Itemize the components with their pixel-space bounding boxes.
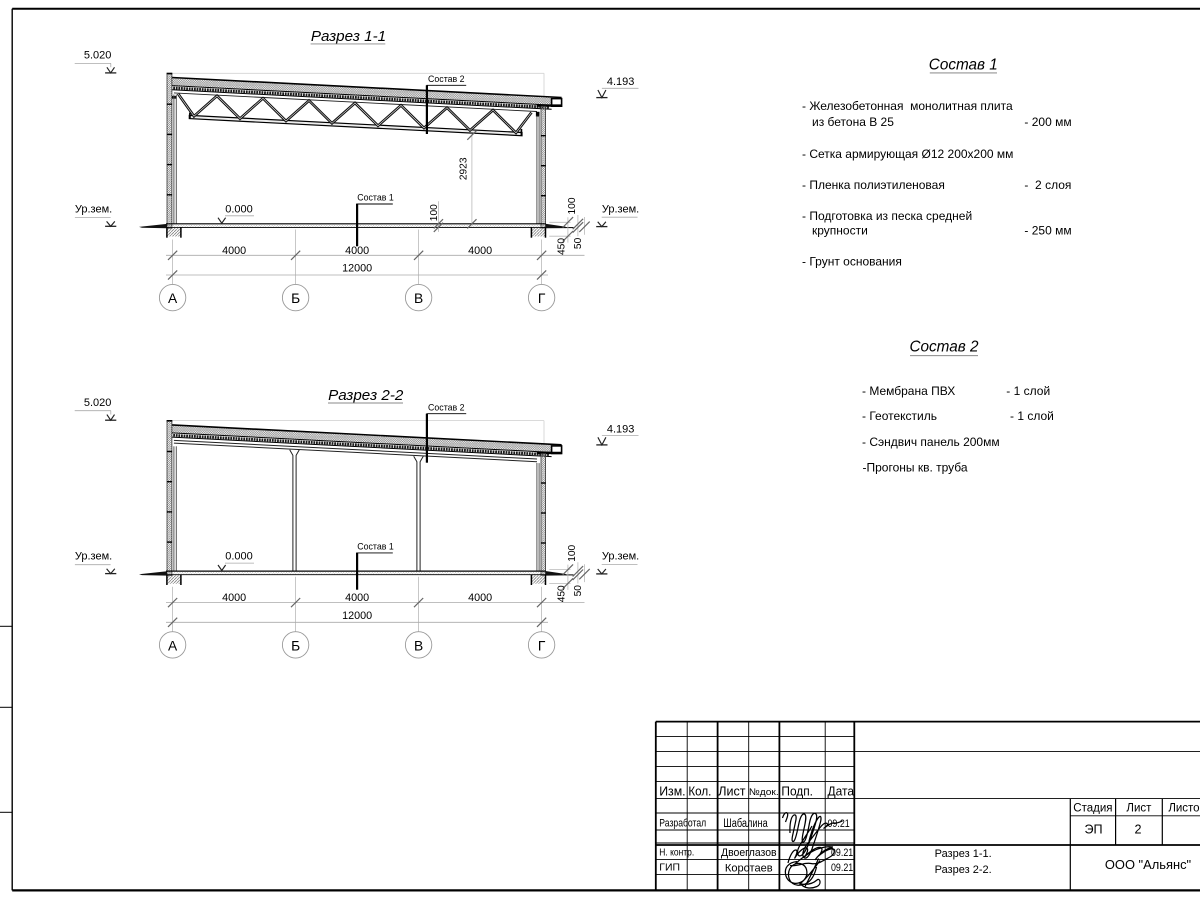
- svg-text:0.000: 0.000: [225, 203, 253, 215]
- svg-text:100: 100: [567, 197, 578, 214]
- svg-text:12000: 12000: [342, 263, 372, 275]
- svg-text:12000: 12000: [342, 610, 372, 622]
- svg-text:4000: 4000: [222, 592, 246, 604]
- svg-text:- Сетка армирующая Ø12 200х200: - Сетка армирующая Ø12 200х200 мм: [802, 147, 1013, 161]
- svg-text:- Железобетонная монолитная п: - Железобетонная монолитная плита: [802, 99, 1013, 113]
- svg-text:4000: 4000: [468, 592, 492, 604]
- svg-text:№док.: №док.: [749, 787, 779, 798]
- svg-text:- Грунт основания: - Грунт основания: [802, 254, 902, 268]
- svg-text:Разрез 1-1: Разрез 1-1: [311, 28, 386, 45]
- svg-text:Состав 1: Состав 1: [357, 193, 394, 203]
- svg-text:4.193: 4.193: [607, 76, 635, 88]
- svg-text:- Геотекстиль: - Геотекстиль: [862, 409, 937, 423]
- svg-text:Лист: Лист: [718, 783, 745, 798]
- svg-text:ООО "Альянс": ООО "Альянс": [1105, 857, 1192, 872]
- svg-text:- Сэндвич панель 200мм: - Сэндвич панель 200мм: [862, 435, 1000, 449]
- svg-text:100: 100: [567, 544, 578, 561]
- svg-text:Н. контр.: Н. контр.: [659, 847, 694, 859]
- svg-text:Б: Б: [291, 291, 300, 306]
- svg-text:- Пленка полиэтиленовая: - Пленка полиэтиленовая: [802, 178, 945, 192]
- svg-text:Состав 2: Состав 2: [428, 74, 465, 84]
- svg-text:Разрез 2-2: Разрез 2-2: [328, 387, 404, 404]
- svg-text:- 2 слоя: - 2 слоя: [1024, 178, 1071, 192]
- svg-text:А: А: [168, 291, 178, 306]
- svg-text:А: А: [168, 638, 178, 653]
- svg-text:- Подготовка из песка средней: - Подготовка из песка средней: [802, 209, 972, 223]
- svg-text:5.020: 5.020: [84, 397, 112, 409]
- svg-text:50: 50: [573, 585, 584, 597]
- svg-text:5.020: 5.020: [84, 50, 112, 62]
- svg-text:- 250 мм: - 250 мм: [1024, 223, 1071, 237]
- svg-text:Лист: Лист: [1126, 803, 1152, 815]
- svg-text:ГИП: ГИП: [659, 862, 680, 873]
- svg-text:Изм.: Изм.: [659, 783, 685, 798]
- svg-text:100: 100: [429, 204, 440, 221]
- svg-text:450: 450: [556, 238, 567, 255]
- svg-text:Б: Б: [291, 638, 300, 653]
- svg-text:Разрез 1-1.: Разрез 1-1.: [935, 848, 992, 860]
- svg-text:4000: 4000: [345, 245, 369, 257]
- svg-text:Состав 2: Состав 2: [428, 402, 465, 412]
- svg-text:4.193: 4.193: [607, 424, 635, 436]
- svg-text:09.21: 09.21: [831, 862, 853, 874]
- svg-text:Подп.: Подп.: [781, 783, 813, 798]
- svg-text:2: 2: [1134, 823, 1141, 837]
- svg-text:50: 50: [573, 237, 584, 249]
- svg-text:Двоеглазов: Двоеглазов: [721, 847, 777, 859]
- svg-text:Г: Г: [538, 638, 546, 653]
- svg-text:Состав 1: Состав 1: [357, 542, 394, 552]
- svg-text:Состав 1: Состав 1: [929, 56, 998, 73]
- svg-text:Ур.зем.: Ур.зем.: [602, 551, 639, 563]
- svg-text:Кол.: Кол.: [688, 783, 711, 798]
- svg-text:4000: 4000: [345, 592, 369, 604]
- svg-text:Шабалина: Шабалина: [723, 818, 768, 830]
- svg-text:-Прогоны кв. труба: -Прогоны кв. труба: [863, 461, 968, 475]
- svg-text:- 200 мм: - 200 мм: [1024, 115, 1071, 129]
- svg-text:Разработал: Разработал: [659, 817, 706, 829]
- svg-text:Разрез 2-2.: Разрез 2-2.: [935, 864, 992, 876]
- svg-text:4000: 4000: [468, 245, 492, 257]
- svg-text:Ур.зем.: Ур.зем.: [75, 551, 112, 563]
- svg-text:Коротаев: Коротаев: [725, 862, 773, 874]
- svg-text:2923: 2923: [459, 157, 470, 180]
- svg-text:Стадия: Стадия: [1073, 803, 1112, 815]
- svg-text:0.000: 0.000: [225, 551, 253, 563]
- svg-text:- Мембрана ПВХ: - Мембрана ПВХ: [862, 384, 955, 398]
- svg-text:Листов: Листов: [1168, 803, 1200, 815]
- svg-text:4000: 4000: [222, 245, 246, 257]
- svg-text:крупности: крупности: [812, 223, 868, 237]
- svg-text:В: В: [414, 638, 423, 653]
- svg-text:Дата: Дата: [828, 783, 855, 798]
- svg-text:Состав 2: Состав 2: [909, 339, 979, 356]
- svg-text:В: В: [414, 291, 423, 306]
- svg-text:- 1 слой: - 1 слой: [1010, 409, 1054, 423]
- svg-text:- 1 слой: - 1 слой: [1006, 384, 1050, 398]
- svg-text:Г: Г: [538, 291, 546, 306]
- svg-text:450: 450: [556, 585, 567, 602]
- svg-text:Ур.зем.: Ур.зем.: [75, 203, 112, 215]
- svg-text:из бетона В 25: из бетона В 25: [812, 115, 894, 129]
- svg-text:Ур.зем.: Ур.зем.: [602, 203, 639, 215]
- svg-text:ЭП: ЭП: [1084, 823, 1102, 837]
